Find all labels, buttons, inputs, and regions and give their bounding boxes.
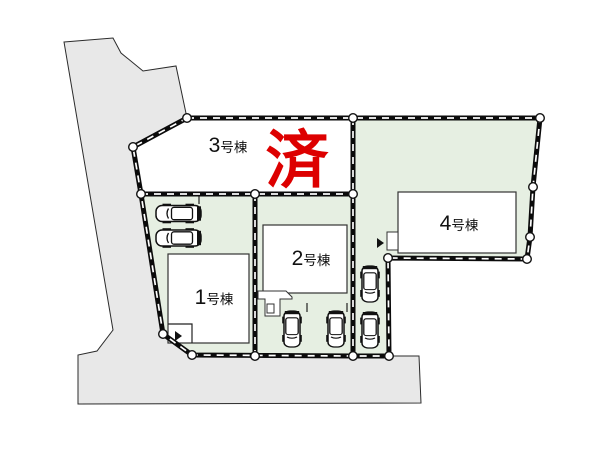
site-plan-page: 1号棟 2号棟 3号棟 4号棟 済 xyxy=(0,0,600,449)
car-top-view-icon xyxy=(326,311,346,347)
car-top-view-icon xyxy=(156,204,201,224)
car-top-view-icon xyxy=(156,228,201,248)
car-top-view-icon xyxy=(360,266,380,302)
car-top-view-icon xyxy=(282,311,302,347)
car-top-view-icon xyxy=(360,312,380,348)
sold-stamp: 済 xyxy=(266,126,330,196)
building-4-porch xyxy=(387,232,398,250)
site-plan-canvas: 1号棟 2号棟 3号棟 4号棟 済 xyxy=(0,0,600,449)
